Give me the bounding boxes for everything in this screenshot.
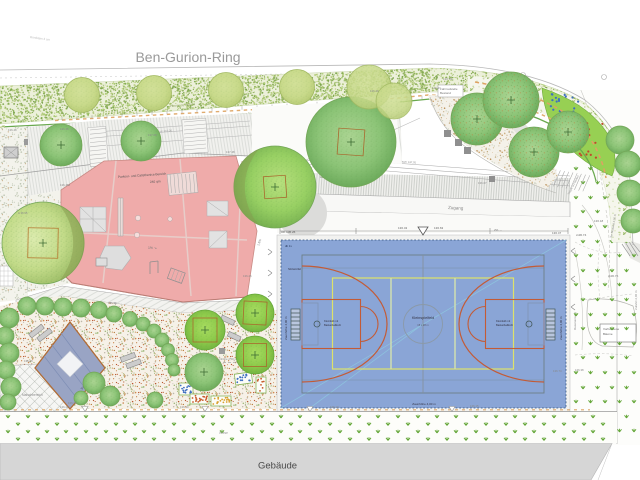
svg-text:136.18: 136.18 <box>594 219 604 223</box>
svg-text:Bäume: Bäume <box>603 332 613 336</box>
svg-text:Ben-Gurion-Ring: Ben-Gurion-Ring <box>135 49 240 65</box>
svg-text:Zufahrt 2,06 m: Zufahrt 2,06 m <box>634 290 638 310</box>
